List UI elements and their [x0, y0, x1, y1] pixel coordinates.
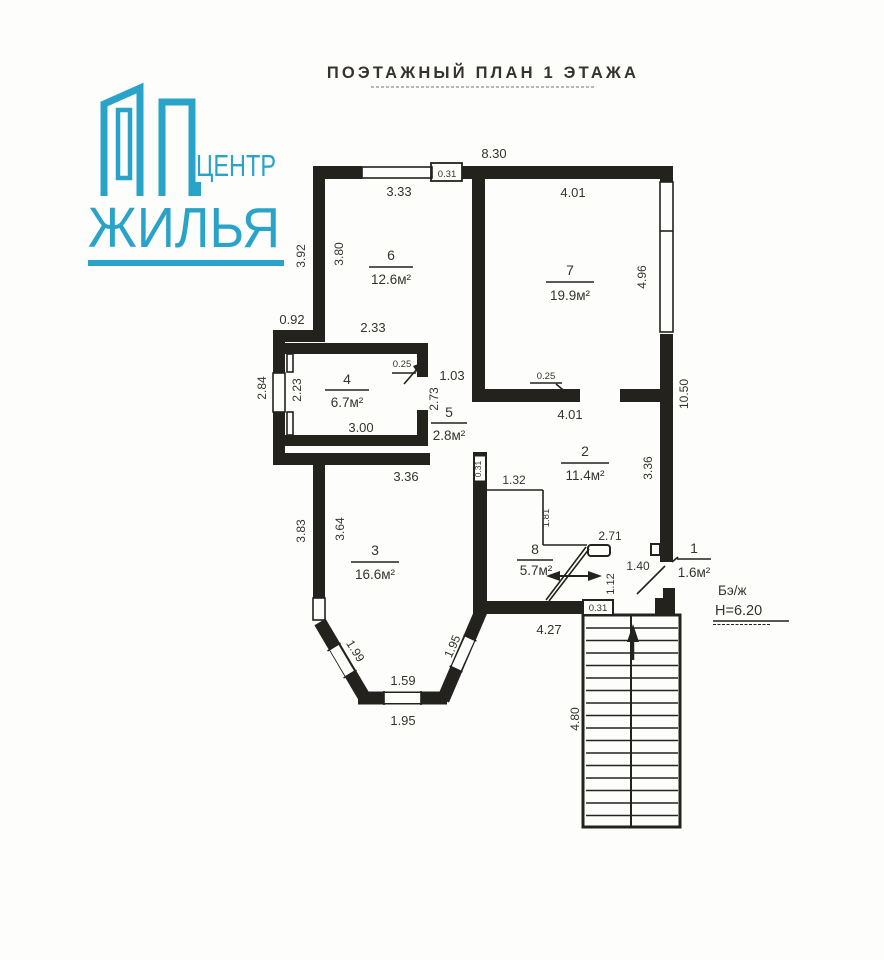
dim-part-271: 2.71	[598, 529, 622, 543]
dim-part-132: 1.32	[502, 473, 526, 487]
svg-text:2.8м²: 2.8м²	[433, 428, 466, 443]
room-6-label: 6 12.6м²	[369, 247, 413, 287]
dim-entry-112: 1.12	[605, 573, 617, 594]
dim-room6-width: 3.33	[386, 184, 411, 199]
svg-text:5.7м²: 5.7м²	[520, 563, 553, 578]
room-1-label: 1 1.6м²	[677, 540, 711, 580]
note-construction: Бэ/ж	[718, 583, 747, 598]
dim-room7-bottom: 4.01	[557, 407, 582, 422]
floor-plan-drawing: ЦЕНТР ЖИЛЬЯ ПОЭТАЖНЫЙ ПЛАН 1 ЭТАЖА	[0, 0, 884, 960]
window-right	[660, 182, 673, 332]
window-top	[362, 167, 432, 178]
window-left	[273, 373, 285, 412]
door-leaf-symbol	[588, 545, 610, 556]
entry-arrow-right-head	[588, 571, 602, 581]
dim-right-window: 4.96	[635, 265, 649, 289]
staircase	[583, 600, 680, 827]
room-labels: 6 12.6м² 7 19.9м² 4 6.7м² 5 2.8м² 2 11.4…	[325, 247, 711, 582]
dim-closet-nib: 0.25	[393, 359, 412, 370]
logo-word-centr: ЦЕНТР	[196, 148, 276, 183]
buildings-logo-icon	[104, 88, 201, 196]
svg-text:1.6м²: 1.6м²	[678, 565, 711, 580]
dim-top-wall-thickness: 0.31	[438, 169, 457, 180]
room-3-label: 3 16.6м²	[351, 542, 399, 582]
svg-text:6.7м²: 6.7м²	[331, 395, 364, 410]
page-title: ПОЭТАЖНЫЙ ПЛАН 1 ЭТАЖА	[327, 63, 639, 82]
dim-wall7-thickness: 0.25	[537, 371, 556, 382]
dim-divider-thickness: 0.31	[473, 460, 483, 477]
dim-left-outer-height: 3.92	[294, 244, 308, 268]
window-left-lower	[313, 598, 325, 620]
dim-stairs-length: 4.80	[568, 707, 582, 731]
svg-text:4: 4	[343, 371, 351, 387]
svg-text:7: 7	[566, 262, 574, 278]
svg-text:19.9м²: 19.9м²	[550, 288, 591, 303]
dim-entry-140: 1.40	[626, 559, 650, 573]
dim-room3-left-outer: 3.83	[294, 519, 308, 543]
room-8-label: 8 5.7м²	[517, 541, 553, 578]
note-height: Н=6.20	[715, 603, 762, 619]
dim-room2-height: 3.36	[641, 456, 655, 480]
scanned-floor-plan-page: ЦЕНТР ЖИЛЬЯ ПОЭТАЖНЫЙ ПЛАН 1 ЭТАЖА	[0, 0, 884, 960]
room-7-label: 7 19.9м²	[546, 262, 594, 303]
dim-bay-bottom-outer: 1.95	[390, 713, 415, 728]
room8-partitions	[487, 490, 610, 601]
dim-room4-width: 3.00	[348, 420, 373, 435]
svg-text:16.6м²: 16.6м²	[355, 567, 396, 582]
svg-text:8: 8	[531, 541, 539, 557]
dim-overall-top: 8.30	[481, 146, 506, 161]
dim-room5-height: 2.73	[427, 387, 441, 411]
svg-text:12.6м²: 12.6м²	[371, 272, 412, 287]
agency-logo: ЦЕНТР ЖИЛЬЯ	[88, 88, 284, 266]
dim-bay-bottom-inner: 1.59	[390, 673, 415, 688]
drawing-title: ПОЭТАЖНЫЙ ПЛАН 1 ЭТАЖА	[327, 63, 639, 87]
logo-word-zhilya: ЖИЛЬЯ	[88, 196, 280, 260]
dim-south-wall-thickness: 0.31	[589, 603, 608, 614]
dim-bay4-outer: 2.84	[255, 376, 269, 400]
door-hinge-symbol	[651, 544, 660, 555]
dim-right-total: 10.50	[677, 379, 691, 409]
svg-text:5: 5	[445, 404, 453, 420]
dim-room3-top: 3.36	[393, 469, 418, 484]
svg-text:6: 6	[387, 247, 395, 263]
svg-text:1: 1	[690, 540, 698, 556]
room-4-label: 4 6.7м²	[325, 371, 369, 410]
logo-underline	[88, 260, 284, 266]
room-2-label: 2 11.4м²	[561, 443, 609, 483]
dim-step-left: 0.92	[279, 312, 304, 327]
dim-room4-top: 2.33	[360, 320, 385, 335]
dim-part-181: 1.81	[541, 509, 552, 528]
dim-room4-height: 2.23	[290, 378, 304, 402]
dim-room6-height: 3.80	[332, 242, 346, 266]
dim-south-width: 4.27	[536, 622, 561, 637]
dim-room7-width: 4.01	[560, 185, 585, 200]
svg-text:11.4м²: 11.4м²	[565, 468, 605, 483]
bay-window-walls	[320, 609, 482, 705]
svg-text:2: 2	[581, 443, 589, 459]
dim-room3-height: 3.64	[333, 517, 347, 541]
svg-text:3: 3	[371, 542, 379, 558]
building-notes: Бэ/ж Н=6.20	[713, 583, 789, 625]
dim-closet-width: 1.03	[439, 368, 464, 383]
